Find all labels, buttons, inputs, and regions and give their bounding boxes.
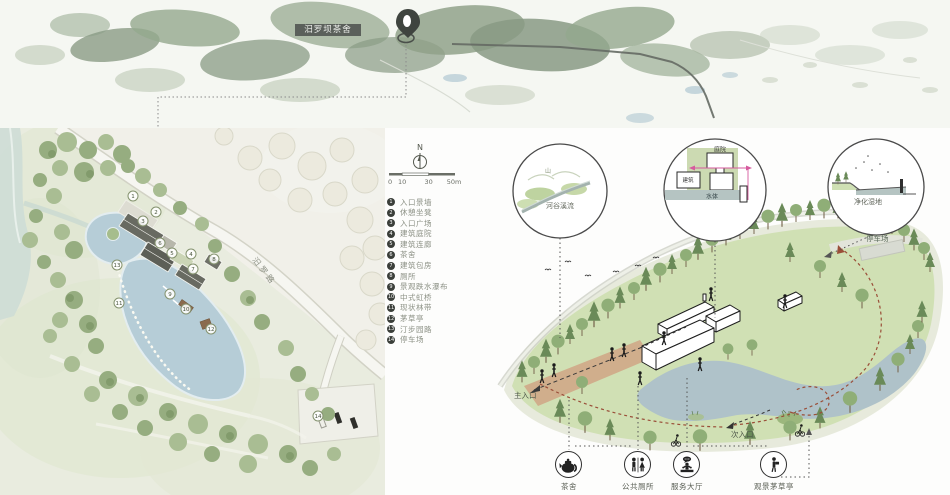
- legend-number-badge: 9: [387, 283, 395, 291]
- main-entrance-label: 主入口: [514, 390, 537, 400]
- legend-number-badge: 1: [387, 198, 395, 206]
- svg-text:12: 12: [208, 327, 215, 333]
- legend-number-badge: 4: [387, 230, 395, 238]
- legend-item: 14停车场: [387, 336, 483, 344]
- scale-tick: 50m: [447, 178, 462, 186]
- legend-number-badge: 13: [387, 325, 395, 333]
- site-plan: 汨罗路 1 2 3 4 5 6 7 8 9 10 11 12 13 14: [0, 128, 385, 495]
- facility-label: 茶舍: [534, 481, 604, 492]
- hill-label: 山: [545, 167, 551, 175]
- teapot-icon: [558, 454, 580, 476]
- callout-wetland: 净化湿地: [828, 139, 924, 235]
- legend-item: 8厕所: [387, 272, 483, 280]
- facility-tea-house: [555, 451, 582, 478]
- building-label: 建筑: [682, 176, 694, 184]
- facility-service-hall: [673, 451, 700, 478]
- legend-item: 12茅草亭: [387, 315, 483, 323]
- legend-label: 中式虹桥: [400, 292, 432, 303]
- site-name-text: 汨罗坝茶舍: [304, 25, 352, 35]
- legend-label: 茶舍: [400, 249, 416, 260]
- parking-label: 停车场: [866, 233, 889, 243]
- svg-text:9: 9: [168, 292, 172, 298]
- facility-label: 观景茅草亭: [739, 481, 809, 492]
- legend-label: 景观跌水瀑布: [400, 281, 448, 292]
- north-arrow: N: [406, 142, 434, 172]
- svg-text:3: 3: [141, 219, 145, 225]
- legend-item: 9景观跌水瀑布: [387, 283, 483, 291]
- legend-item: 7建筑包房: [387, 262, 483, 270]
- legend-item: 1入口景墙: [387, 198, 483, 206]
- north-label: N: [417, 143, 423, 152]
- svg-text:4: 4: [189, 252, 193, 258]
- legend-item: 13汀步园路: [387, 325, 483, 333]
- legend-item: 4建筑庭院: [387, 230, 483, 238]
- scale-tick: 10: [398, 178, 406, 186]
- legend-item: 10中式虹桥: [387, 293, 483, 301]
- legend-label: 休憩坐凳: [400, 207, 432, 218]
- location-map: [0, 0, 950, 128]
- callout-courtyard: 庭院 建筑 水体: [664, 139, 766, 241]
- courtyard-label: 庭院: [714, 146, 726, 154]
- secondary-entrance-label: 次入口: [731, 429, 754, 439]
- axon-diagram: 山 河谷溪流 庭院 建筑 水体: [490, 128, 950, 495]
- legend-number-badge: 7: [387, 262, 395, 270]
- legend-number-badge: 14: [387, 336, 395, 344]
- svg-text:11: 11: [116, 301, 123, 307]
- legend-number-badge: 6: [387, 251, 395, 259]
- legend-number-badge: 2: [387, 209, 395, 217]
- site-name-tag: 汨罗坝茶舍: [295, 24, 361, 36]
- legend-item: 3入口广场: [387, 219, 483, 227]
- facility-label: 服务大厅: [652, 481, 722, 492]
- legend-item: 5建筑连廊: [387, 240, 483, 248]
- legend-label: 入口景墙: [400, 197, 432, 208]
- legend-label: 建筑包房: [400, 260, 432, 271]
- legend-label: 现状林带: [400, 302, 432, 313]
- restroom-icon: [627, 454, 649, 476]
- scale-bar: 0 10 30 50m: [388, 170, 466, 188]
- stream-caption: 河谷溪流: [546, 201, 574, 210]
- legend-number-badge: 5: [387, 240, 395, 248]
- legend-label: 茅草亭: [400, 313, 424, 324]
- svg-text:10: 10: [183, 307, 190, 313]
- legend-number-badge: 3: [387, 219, 395, 227]
- scale-tick: 30: [424, 178, 432, 186]
- svg-text:6: 6: [158, 241, 162, 247]
- callout-stream: 山 河谷溪流: [513, 144, 607, 238]
- viewing-pavilion-icon: [763, 454, 785, 476]
- weir: [900, 179, 903, 193]
- svg-text:1: 1: [131, 194, 135, 200]
- svg-text:8: 8: [212, 257, 216, 263]
- legend-list: 1入口景墙 2休憩坐凳 3入口广场 4建筑庭院 5建筑连廊 6茶舍 7建筑包房 …: [387, 198, 483, 346]
- legend-label: 入口广场: [400, 218, 432, 229]
- legend-item: 6茶舍: [387, 251, 483, 259]
- svg-text:7: 7: [191, 267, 195, 273]
- svg-text:13: 13: [114, 263, 121, 269]
- legend-item: 11现状林带: [387, 304, 483, 312]
- legend-label: 停车场: [400, 334, 424, 345]
- legend-label: 汀步园路: [400, 324, 432, 335]
- legend-label: 建筑庭院: [400, 228, 432, 239]
- legend-number-badge: 12: [387, 315, 395, 323]
- scale-tick: 0: [388, 178, 392, 186]
- svg-text:5: 5: [170, 251, 174, 257]
- wetland-caption: 净化湿地: [854, 197, 882, 206]
- facility-public-toilet: [624, 451, 651, 478]
- pond-island: [107, 228, 120, 241]
- svg-text:2: 2: [154, 210, 158, 216]
- legend-number-badge: 8: [387, 272, 395, 280]
- legend-item: 2休憩坐凳: [387, 209, 483, 217]
- waterbody-label: 水体: [706, 193, 718, 201]
- presentation-board: 汨罗坝茶舍: [0, 0, 950, 495]
- legend-number-badge: 11: [387, 304, 395, 312]
- legend-label: 厕所: [400, 271, 416, 282]
- legend-number-badge: 10: [387, 293, 395, 301]
- facility-viewing-pavilion: [760, 451, 787, 478]
- legend-label: 建筑连廊: [400, 239, 432, 250]
- service-hall-icon: [676, 454, 698, 476]
- svg-text:14: 14: [315, 414, 322, 420]
